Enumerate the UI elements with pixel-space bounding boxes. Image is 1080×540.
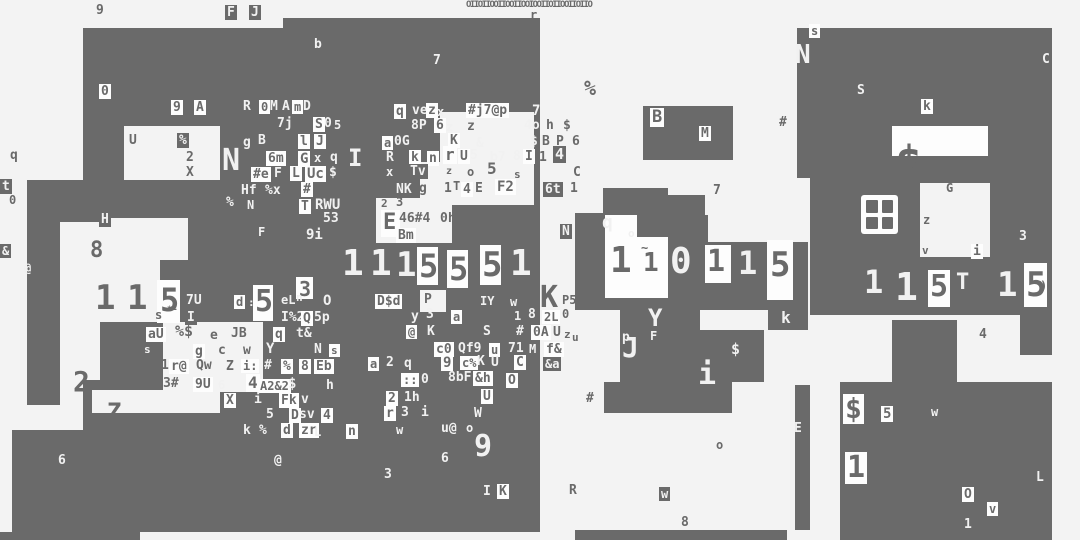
- glyph-text: 1: [895, 268, 918, 306]
- glyph-text: 1: [514, 310, 521, 322]
- glyph-text: 0: [421, 373, 429, 386]
- glyph-text: d: [234, 295, 245, 309]
- glyph-text: v: [301, 393, 309, 406]
- glyph-text: 5: [255, 287, 273, 317]
- glyph-text: r: [530, 9, 537, 21]
- glyph-text: &: [0, 244, 11, 258]
- glyph-text: 5: [266, 408, 274, 421]
- glyph-text: i: [698, 360, 716, 390]
- glyph-text: s: [155, 309, 162, 321]
- glyph-text: Q: [301, 311, 313, 326]
- glyph-text: L: [1036, 471, 1044, 484]
- glyph-text: A: [194, 100, 206, 115]
- glyph-text: w: [510, 296, 517, 308]
- glyph-text: z: [446, 121, 453, 133]
- glyph-text: W: [474, 407, 482, 420]
- glyph-text: &a: [543, 357, 561, 371]
- glyph-text: s: [329, 344, 340, 357]
- glyph-text: Eb: [314, 359, 334, 374]
- glyph-text: B: [542, 135, 550, 148]
- glyph-text: 2L: [542, 310, 560, 324]
- glyph-text: 8: [90, 240, 103, 262]
- glyph-text: 4: [979, 328, 987, 341]
- glyph-text: d: [281, 423, 293, 438]
- glyph-text: 71: [508, 342, 524, 355]
- glyph-text: 46#4: [399, 212, 430, 225]
- glyph-text: aU: [146, 327, 166, 342]
- glyph-text: r: [443, 146, 457, 164]
- glyph-text: B: [650, 108, 664, 127]
- glyph-text: #: [301, 182, 313, 197]
- glyph-text: T: [956, 272, 969, 294]
- glyph-text: n: [427, 151, 439, 166]
- glyph-text: i:: [241, 359, 259, 373]
- background-block: [283, 18, 540, 30]
- glyph-text: i: [254, 393, 262, 406]
- glyph-text: J: [622, 334, 639, 362]
- glyph-text: *-: [167, 306, 178, 315]
- glyph-text: 7j: [277, 117, 293, 130]
- glyph-text: 6: [58, 454, 66, 467]
- glyph-text: I: [523, 149, 535, 164]
- glyph-text: 5: [449, 253, 468, 285]
- glyph-text: $: [895, 140, 923, 186]
- glyph-text: U: [129, 134, 137, 147]
- glyph-text: 9U: [193, 377, 213, 392]
- background-block: [1020, 315, 1052, 355]
- glyph-text: 1: [964, 518, 972, 531]
- glyph-text: m: [292, 100, 303, 114]
- background-block: [60, 180, 83, 222]
- glyph-text: 3: [401, 406, 409, 419]
- glyph-text: 0A: [531, 325, 551, 340]
- glyph-text: Tv: [408, 164, 428, 179]
- glyph-text: @: [406, 325, 417, 339]
- glyph-text: s: [142, 343, 153, 356]
- glyph-text: 1: [161, 359, 169, 372]
- glyph-text: IY: [480, 295, 494, 307]
- glyph-text: 2: [381, 198, 388, 209]
- glyph-text: C: [573, 166, 581, 179]
- glyph-text: v: [987, 502, 998, 516]
- glyph-text: JB: [231, 327, 247, 340]
- glyph-text: A: [282, 100, 290, 113]
- glyph-text: n: [346, 424, 358, 439]
- glyph-text: %: [584, 78, 596, 98]
- background-cutout: [124, 126, 220, 180]
- glyph-text: f&: [544, 342, 564, 357]
- glyph-text: 8: [681, 516, 689, 529]
- glyph-text: 9: [96, 4, 104, 17]
- glyph-text: a: [382, 136, 393, 150]
- glyph-text: B: [258, 134, 266, 147]
- glyph-text: 6: [572, 135, 580, 148]
- glyph-text: 5: [881, 406, 893, 422]
- glyph-text: 3#: [163, 377, 179, 390]
- glyph-text: 4: [461, 182, 473, 197]
- glyph-text: Z: [107, 400, 121, 424]
- glyph-text: A2&2: [258, 379, 291, 393]
- glyph-text: &h: [473, 371, 493, 386]
- glyph-text: 4: [553, 146, 566, 163]
- glyph-text: 6: [434, 118, 446, 133]
- glyph-text: $: [530, 135, 538, 148]
- glyph-text: 2: [186, 151, 194, 164]
- glyph-text: 3: [396, 196, 403, 208]
- glyph-text: L: [290, 166, 302, 181]
- glyph-text: 1: [610, 243, 632, 279]
- glyph-text: ): [1040, 280, 1047, 292]
- glyph-text: z: [446, 167, 452, 177]
- glyph-text: E: [794, 422, 802, 435]
- window-pane: [882, 217, 894, 230]
- glyph-text: $: [288, 377, 296, 391]
- glyph-text: w: [243, 344, 251, 357]
- glyph-text: k: [781, 310, 791, 326]
- glyph-text: @: [24, 262, 31, 274]
- glyph-text: 4o: [524, 119, 540, 132]
- background-block: [840, 382, 1052, 540]
- glyph-text: S: [483, 325, 491, 338]
- glyph-text: r: [384, 406, 396, 421]
- glyph-text: O: [962, 487, 974, 502]
- glyph-text: 1: [864, 266, 883, 298]
- glyph-text: 0: [259, 100, 270, 114]
- glyph-text: 1: [845, 452, 867, 484]
- background-block: [12, 430, 540, 532]
- glyph-text: N: [247, 199, 254, 211]
- glyph-text: $: [563, 119, 571, 132]
- glyph-text: %: [259, 424, 267, 437]
- glyph-text: 9: [171, 100, 183, 115]
- glyph-text: 1: [396, 248, 416, 282]
- glyph-text: g: [419, 182, 427, 195]
- background-block: [575, 530, 787, 540]
- glyph-text: E: [475, 182, 483, 195]
- glyph-text: K: [477, 355, 485, 368]
- glyph-text: Fk: [279, 393, 299, 408]
- glyph-text: U: [553, 326, 561, 339]
- glyph-text: X: [186, 166, 194, 179]
- glyph-text: sv: [299, 408, 315, 421]
- glyph-text: J: [249, 5, 261, 20]
- glyph-text: z: [923, 214, 930, 226]
- glyph-text: R: [386, 151, 394, 164]
- glyph-text: q: [602, 214, 613, 232]
- glyph-text: L: [314, 426, 321, 438]
- window-pane: [882, 200, 894, 213]
- background-cutout: [140, 532, 540, 540]
- glyph-text: %x: [265, 184, 281, 197]
- glyph-text: 7: [433, 54, 441, 67]
- background-block: [27, 180, 60, 405]
- glyph-text: Uc: [305, 166, 326, 182]
- glyph-text: O: [323, 294, 331, 308]
- glyph-text: h: [546, 119, 554, 132]
- glyph-text: $: [843, 394, 864, 424]
- glyph-text: 3: [384, 468, 392, 481]
- glyph-text: %: [281, 359, 293, 374]
- glyph-text: $: [329, 166, 337, 179]
- window-pane: [866, 200, 878, 213]
- glyph-text: 6: [218, 379, 225, 391]
- glyph-text: M: [529, 343, 536, 355]
- glyph-text: 8: [299, 359, 311, 374]
- glyph-text: a: [451, 310, 462, 324]
- glyph-text: q: [330, 151, 338, 164]
- glyph-text: 8: [513, 150, 521, 163]
- glyph-text: u@: [441, 422, 457, 435]
- glyph-text: %: [177, 133, 189, 148]
- glyph-text: x: [437, 106, 444, 118]
- glyph-text: F: [650, 330, 657, 342]
- glyph-text: t: [0, 179, 12, 194]
- glyph-text: H: [99, 212, 111, 227]
- glyph-text: o: [628, 228, 635, 239]
- glyph-text: K: [540, 283, 558, 313]
- glyph-text: x: [314, 152, 321, 164]
- glyph-text: 0h: [440, 212, 456, 225]
- glyph-text: Z: [226, 360, 234, 373]
- glyph-text: P: [424, 293, 432, 306]
- window-grid-icon: [861, 195, 898, 234]
- glyph-text: a: [368, 357, 379, 371]
- glyph-text: 1h: [404, 391, 420, 404]
- glyph-text: q: [394, 104, 406, 119]
- glyph-text: k: [921, 99, 933, 114]
- glyph-text: RWU: [315, 198, 340, 212]
- glyph-text: M: [270, 100, 278, 113]
- background-cutout: [957, 320, 1020, 382]
- glyph-text: w: [659, 487, 670, 501]
- glyph-text: G: [946, 182, 953, 194]
- glyph-text: k: [409, 150, 421, 165]
- glyph-text: 2: [386, 391, 398, 406]
- glyph-text: z: [564, 329, 571, 340]
- glyph-text: N: [560, 224, 572, 239]
- glyph-text: 5: [482, 248, 502, 282]
- glyph-text: 6m: [266, 151, 286, 166]
- glyph-text: 0: [562, 308, 569, 320]
- glyph-text: 2: [73, 368, 90, 396]
- glyph-text: u: [572, 332, 579, 343]
- glyph-text: ::: [401, 373, 419, 387]
- glyph-text: P5: [562, 294, 576, 306]
- glyph-text: b: [314, 38, 322, 51]
- glyph-text: o: [467, 166, 474, 178]
- glyph-text: %: [226, 196, 234, 209]
- glyph-text: 3: [426, 308, 434, 321]
- glyph-text: 7: [713, 184, 721, 197]
- glyph-text: c: [218, 344, 226, 357]
- glyph-text: C: [1042, 53, 1050, 66]
- glyph-text: 5: [487, 161, 497, 177]
- glyph-text: S: [857, 84, 865, 97]
- background-cutout: [840, 320, 892, 382]
- glyph-text: 5: [419, 250, 438, 282]
- glyph-text: I: [348, 146, 362, 170]
- glyph-text: Hf: [241, 184, 257, 197]
- glyph-text: 5: [334, 119, 341, 131]
- glyph-text: 5: [930, 272, 948, 302]
- glyph-text: 9: [441, 355, 453, 371]
- glyph-text: 2: [386, 356, 394, 369]
- glyph-text: F2: [495, 179, 516, 195]
- background-block: [795, 385, 810, 530]
- glyph-text: 7: [532, 104, 540, 118]
- glyph-text: 4: [321, 408, 333, 423]
- glyph-text: 0: [670, 244, 692, 280]
- glyph-text: D: [303, 100, 311, 113]
- glyph-text: %$: [175, 324, 193, 339]
- glyph-text: i: [971, 244, 983, 259]
- glyph-text: 6t: [543, 182, 563, 197]
- glyph-text: Y: [648, 306, 662, 330]
- glyph-text: #: [516, 325, 524, 338]
- glyph-text: 1: [997, 268, 1017, 302]
- window-pane: [866, 217, 878, 230]
- glyph-text: D: [466, 228, 474, 241]
- glyph-text: Qw: [196, 359, 212, 372]
- glyph-text: M: [699, 126, 711, 141]
- background-block: [668, 195, 708, 242]
- glyph-text: r@: [169, 359, 189, 374]
- glyph-text: 5: [770, 248, 790, 282]
- binary-strip-text: OIIOIIOOIIOOIIOOIOOIIOIIOOIIOIIO: [466, 1, 591, 10]
- glyph-text: I: [483, 485, 491, 498]
- background-cutout: [100, 218, 188, 260]
- glyph-text: 1: [444, 182, 452, 195]
- glyph-text: 5: [470, 149, 478, 162]
- glitch-noise-canvas: 9FJOIIOIIOOIIOOIIOOIOOIIOIIOOIIOIIOrb709…: [0, 0, 1080, 540]
- glyph-text: c%: [460, 356, 478, 370]
- glyph-text: U: [481, 389, 493, 404]
- glyph-text: 1: [342, 246, 364, 282]
- glyph-text: x: [386, 166, 393, 178]
- glyph-text: Bm: [396, 228, 416, 243]
- glyph-text: K: [497, 484, 509, 499]
- glyph-text: C: [514, 355, 526, 370]
- glyph-text: o: [466, 422, 473, 434]
- glyph-text: 3: [1019, 230, 1027, 243]
- glyph-text: R: [243, 100, 251, 113]
- glyph-text: 1: [707, 247, 725, 277]
- glyph-text: eL: [281, 294, 295, 306]
- glyph-text: Y: [266, 342, 274, 356]
- glyph-text: 1: [127, 281, 147, 315]
- glyph-text: N: [795, 42, 811, 68]
- glyph-text: t&: [296, 327, 312, 340]
- glyph-text: s: [809, 24, 820, 38]
- glyph-text: y: [411, 310, 419, 323]
- glyph-text: z: [467, 120, 475, 133]
- glyph-text: E: [383, 212, 396, 234]
- glyph-text: U: [458, 149, 470, 164]
- glyph-text: T: [299, 199, 311, 214]
- glyph-text: #e: [251, 167, 271, 182]
- glyph-text: n: [296, 292, 303, 303]
- glyph-text: F: [274, 167, 282, 180]
- glyph-text: q: [10, 149, 18, 162]
- glyph-text: 1: [570, 182, 578, 195]
- glyph-text: 0: [324, 117, 332, 130]
- glyph-text: v: [922, 245, 929, 256]
- glyph-text: 7U: [186, 294, 202, 307]
- glyph-text: 0G: [394, 135, 410, 148]
- glyph-text: #: [264, 359, 272, 372]
- glyph-text: g: [243, 136, 251, 149]
- glyph-text: 5p: [314, 311, 330, 324]
- glyph-text: o: [716, 439, 723, 451]
- glyph-text: 0: [9, 194, 16, 206]
- glyph-text: 9: [474, 432, 492, 462]
- glyph-text: e: [210, 329, 218, 342]
- glyph-text: 53: [323, 212, 339, 225]
- glyph-text: 1: [370, 246, 392, 282]
- glyph-text: N: [222, 146, 240, 176]
- glyph-text: 9i: [306, 228, 323, 242]
- glyph-text: #: [779, 116, 787, 129]
- glyph-text: h: [326, 379, 334, 392]
- glyph-text: T: [453, 180, 460, 192]
- glyph-text: 8P: [411, 119, 427, 132]
- glyph-text: q: [273, 327, 285, 342]
- glyph-text: F: [225, 5, 237, 20]
- glyph-text: O: [506, 373, 518, 388]
- glyph-text: :: [248, 297, 255, 308]
- glyph-text: k: [243, 424, 251, 437]
- background-block: [892, 320, 957, 382]
- glyph-text: 1: [539, 151, 547, 164]
- glyph-text: F: [258, 226, 265, 238]
- glyph-text: 1: [643, 250, 659, 276]
- background-block: [0, 532, 142, 540]
- glyph-text: q: [404, 357, 412, 370]
- glyph-text: w: [931, 406, 938, 418]
- glyph-text: w: [394, 423, 405, 437]
- glyph-text: #j7@p: [466, 103, 509, 118]
- glyph-text: G: [298, 151, 310, 167]
- glyph-text: K: [427, 325, 435, 338]
- glyph-text: J: [314, 134, 326, 149]
- glyph-text: i: [421, 406, 429, 419]
- glyph-text: 1: [738, 247, 757, 279]
- glyph-text: 1: [95, 281, 115, 315]
- glyph-text: g: [193, 344, 205, 359]
- glyph-text: 0: [99, 84, 111, 99]
- glyph-text: 8: [528, 308, 536, 321]
- glyph-text: $: [731, 342, 740, 357]
- glyph-text: 8bF: [448, 371, 471, 384]
- glyph-text: U: [491, 356, 499, 369]
- glyph-text: 6: [441, 452, 449, 465]
- glyph-text: 1: [510, 246, 532, 282]
- glyph-text: X: [224, 393, 236, 408]
- glyph-text: l: [298, 134, 310, 149]
- glyph-text: #: [586, 392, 594, 405]
- glyph-text: R: [569, 484, 577, 497]
- glyph-text: N: [314, 343, 322, 356]
- background-block: [575, 213, 605, 243]
- glyph-text: D$d: [375, 294, 402, 309]
- glyph-text: @: [274, 454, 282, 467]
